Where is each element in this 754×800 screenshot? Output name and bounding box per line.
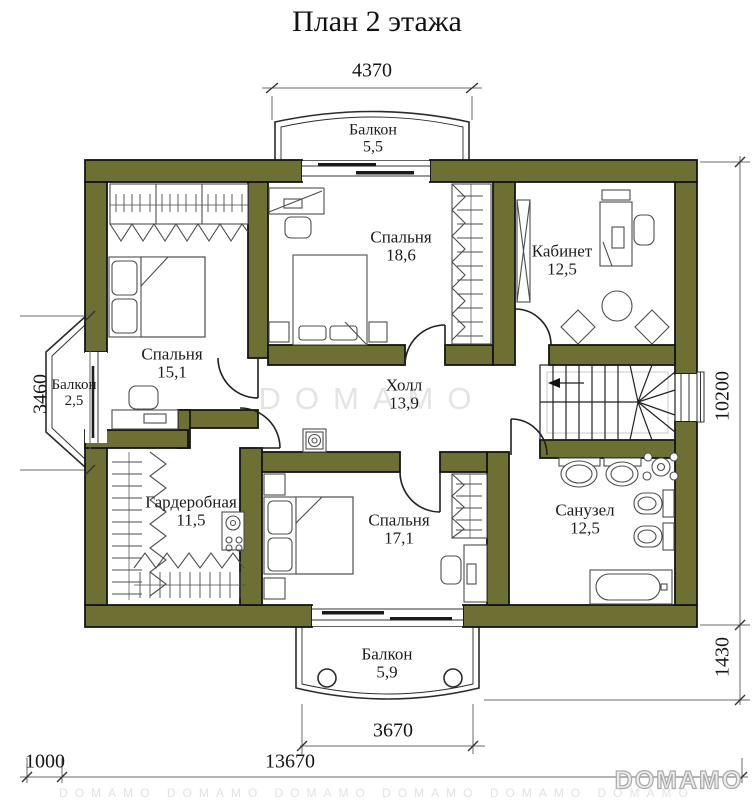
room-label-balcony-bottom: Балкон 5,9 (362, 646, 413, 683)
room-area: 12,5 (555, 520, 614, 538)
door-office (515, 309, 551, 345)
room-name: Кабинет (532, 243, 592, 261)
room-area: 2,5 (52, 393, 97, 409)
room-label-bathroom: Санузел 12,5 (555, 502, 614, 539)
desk-icon (269, 188, 324, 238)
desk-icon (600, 190, 654, 266)
wardrobe-icon (517, 200, 530, 302)
room-area: 13,9 (386, 395, 422, 413)
dimension-left: 3460 (30, 374, 53, 414)
door-bedroom-large (405, 325, 445, 365)
toilet-icon (634, 523, 674, 550)
armchair-icon (561, 310, 595, 344)
page-title: План 2 этажа (292, 5, 462, 39)
nightstand-icon (369, 322, 387, 342)
staircase (540, 365, 675, 440)
room-name: Спальня (370, 229, 431, 247)
room-name: Балкон (362, 646, 413, 664)
room-label-wardrobe: Гардеробная 11,5 (145, 494, 237, 531)
wardrobe-icon (452, 184, 491, 344)
balcony-column (318, 669, 336, 687)
room-name: Санузел (555, 502, 614, 520)
room-name: Балкон (349, 122, 397, 139)
room-area: 5,5 (349, 139, 397, 156)
wardrobe-icon (110, 184, 248, 241)
sink-icon (604, 458, 641, 486)
dimension-right-lower: 1430 (712, 637, 735, 677)
room-name: Гардеробная (145, 494, 237, 512)
table-icon (602, 291, 632, 321)
desk-icon (441, 545, 487, 602)
room-name: Спальня (368, 512, 429, 530)
armchair-icon (635, 310, 669, 344)
balcony-door-top (302, 161, 430, 181)
room-area: 15,1 (141, 364, 202, 382)
door-bedroom-left (218, 358, 258, 398)
room-label-balcony-top: Балкон 5,5 (349, 122, 397, 157)
room-label-bedroom-left: Спальня 15,1 (141, 346, 202, 383)
wardrobe-icon (452, 474, 487, 538)
floor-plan: DOMAMO План 2 этажа Балкон 5,5 Спальня 1… (0, 0, 754, 800)
watermark-strip: DOMAMO DOMAMO DOMAMO DOMAMO DOMAMO DOMAM… (59, 786, 695, 800)
window-right (675, 372, 704, 422)
watermark-center: DOMAMO (259, 381, 486, 417)
room-area: 17,1 (368, 530, 429, 548)
room-name: Спальня (141, 346, 202, 364)
bathtub-icon (590, 570, 672, 604)
nightstand-icon (264, 474, 285, 495)
room-area: 12,5 (532, 261, 592, 279)
room-name: Балкон (52, 377, 97, 393)
bed-icon (293, 255, 367, 345)
room-label-balcony-left: Балкон 2,5 (52, 377, 97, 409)
room-area: 11,5 (145, 512, 237, 530)
desk-icon (112, 386, 178, 429)
room-area: 18,6 (370, 247, 431, 265)
sink-icon (559, 458, 600, 487)
balcony-column (444, 669, 462, 687)
dimension-total-bottom: 13670 (265, 751, 315, 774)
washer-icon (303, 429, 326, 452)
room-label-hall: Холл 13,9 (386, 377, 422, 414)
nightstand-icon (264, 578, 285, 599)
balcony-door-bottom (312, 606, 463, 626)
room-label-bedroom-large: Спальня 18,6 (370, 229, 431, 266)
room-name: Холл (386, 377, 422, 395)
dimension-right: 10200 (712, 371, 735, 421)
bed-icon (264, 497, 353, 574)
room-label-office: Кабинет 12,5 (532, 243, 592, 280)
dimension-balcony-bottom: 3670 (373, 720, 413, 743)
room-area: 5,9 (362, 664, 413, 682)
toilet-icon (634, 490, 674, 517)
dimension-offset-left: 1000 (25, 751, 65, 774)
nightstand-icon (269, 322, 289, 342)
bed-icon (109, 257, 205, 337)
room-label-bedroom-bottom: Спальня 17,1 (368, 512, 429, 549)
door-bedroom-bottom (400, 472, 440, 512)
dimension-top: 4370 (352, 60, 392, 83)
